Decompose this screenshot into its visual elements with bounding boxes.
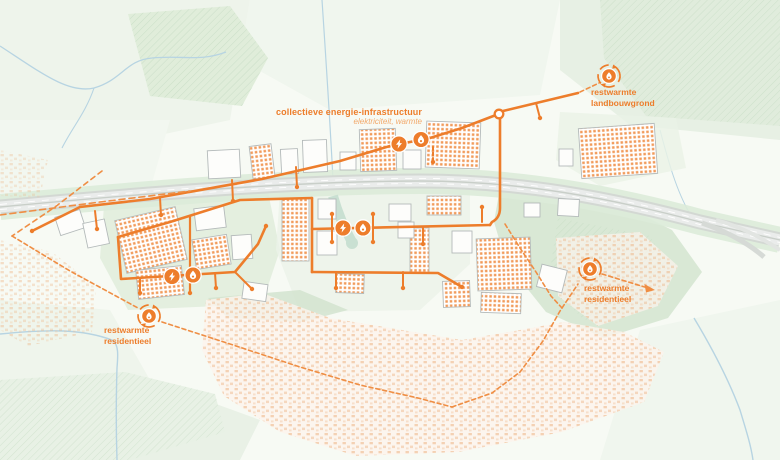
solar-roof-building <box>249 144 275 179</box>
solar-roof-building <box>192 234 231 269</box>
electricity-icon <box>391 136 407 152</box>
energy-infrastructure-map: collectieve energie-infrastructuur elekt… <box>0 0 780 460</box>
solar-roof-building <box>282 199 309 261</box>
heat-icon <box>413 131 429 147</box>
solar-roof-building <box>578 123 657 178</box>
solar-roof-building <box>476 237 532 291</box>
heat-icon <box>185 267 201 283</box>
solar-roof-building <box>427 196 461 215</box>
electricity-icon <box>335 220 351 236</box>
map-canvas <box>0 0 780 460</box>
electricity-icon <box>164 268 180 284</box>
heat-icon <box>355 220 371 236</box>
junction-node-icon <box>495 110 504 119</box>
solar-roof-building <box>336 274 365 294</box>
building <box>207 149 240 179</box>
solar-roof-building <box>481 292 522 313</box>
